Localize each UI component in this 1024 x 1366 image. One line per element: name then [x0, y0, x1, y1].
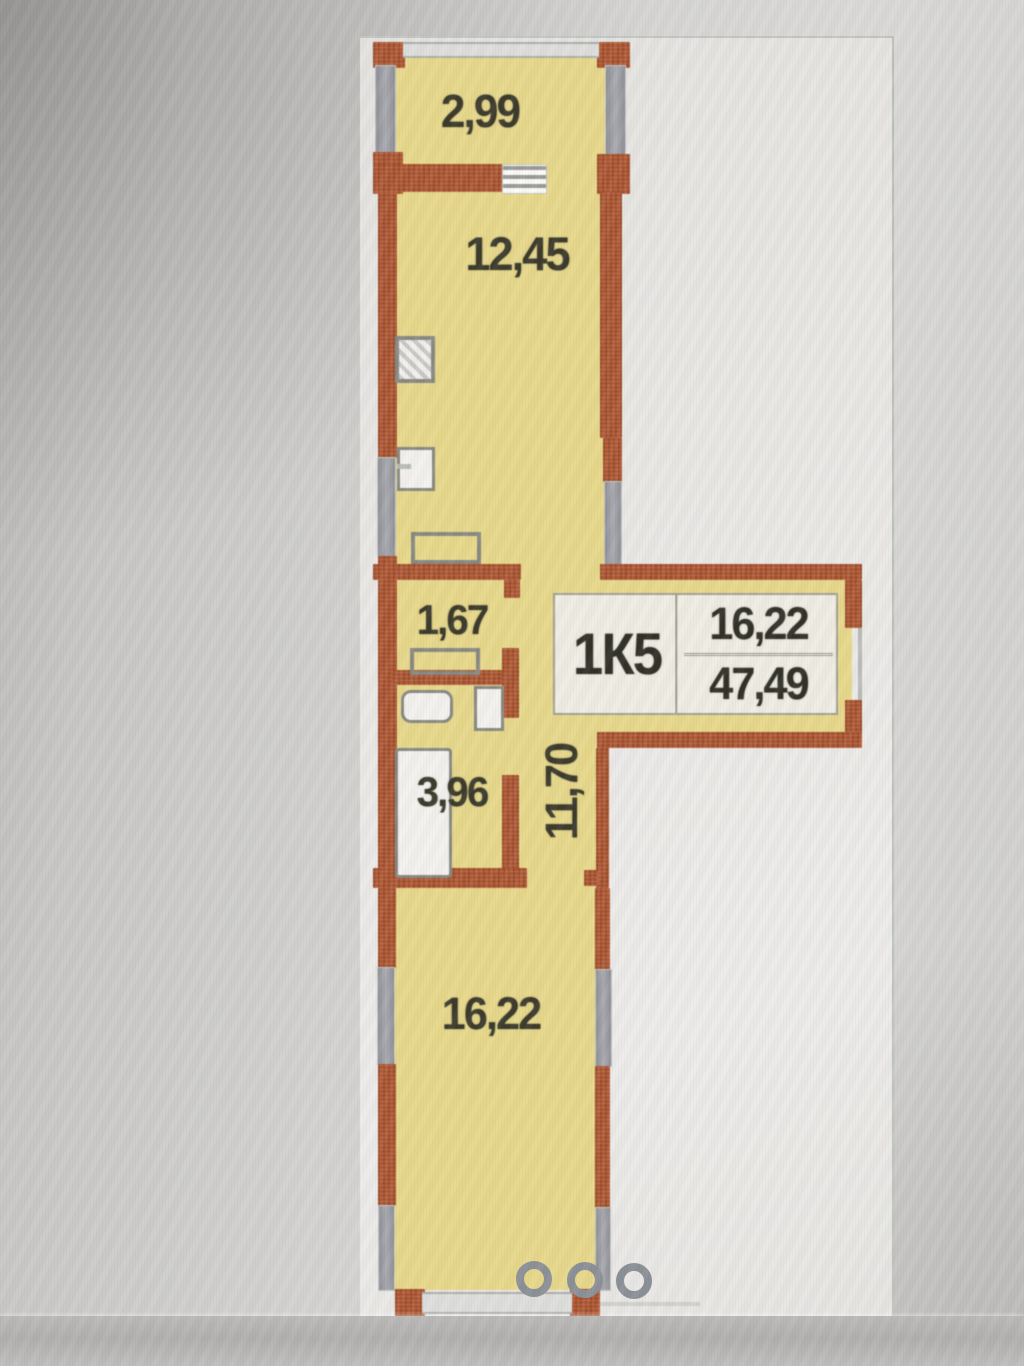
- wall: [373, 42, 405, 68]
- wall: [595, 1066, 610, 1208]
- wall: [378, 1064, 396, 1206]
- wall: [845, 580, 862, 628]
- unit-living-area: 16,22: [684, 595, 833, 656]
- stove-icon: [395, 336, 435, 383]
- window: [606, 66, 625, 156]
- window-ledge: [600, 1302, 700, 1306]
- unit-label-box: 1К5 16,22 47,49: [553, 593, 838, 715]
- floor-plan: 2,99 12,45 1,67 3,96 11,70 16,22 1К5 16,…: [0, 0, 1024, 1366]
- hallway-area-label: 11,70: [538, 715, 586, 869]
- radiator-icon: [502, 164, 547, 194]
- bathroom-area-label: 3,96: [394, 768, 509, 816]
- wall: [597, 154, 630, 194]
- pagination-dot[interactable]: [516, 1261, 552, 1297]
- wall: [395, 1289, 425, 1317]
- wall: [373, 564, 521, 580]
- table-icon: [411, 532, 481, 564]
- washbasin-icon: [474, 686, 504, 731]
- window: [422, 1292, 572, 1314]
- wall: [584, 870, 598, 886]
- window: [378, 968, 394, 1064]
- wall: [378, 888, 396, 968]
- window: [379, 1206, 394, 1290]
- wall: [502, 648, 519, 718]
- pagination-dot[interactable]: [567, 1262, 603, 1298]
- window: [596, 970, 611, 1066]
- balcony-area-label: 2,99: [413, 84, 547, 138]
- wall: [597, 732, 862, 748]
- unit-number: 1К5: [559, 595, 677, 713]
- faucet-icon: [397, 464, 411, 469]
- living-room-area-label: 16,22: [414, 988, 568, 1040]
- kitchen-area-label: 12,45: [440, 226, 594, 281]
- window: [403, 42, 599, 58]
- toilet-icon: [401, 690, 453, 723]
- window: [378, 458, 395, 556]
- wall: [600, 192, 622, 438]
- wall: [378, 192, 397, 458]
- wall: [373, 164, 503, 192]
- screen-bottom-band: [0, 1316, 1024, 1366]
- storage-area-label: 1,67: [394, 596, 509, 644]
- shelf-icon: [410, 648, 480, 675]
- kitchen-sink-icon: [397, 447, 435, 491]
- living-room: [392, 888, 606, 1290]
- wall: [595, 888, 610, 970]
- wall: [597, 42, 630, 68]
- wall: [603, 438, 622, 482]
- pagination-dot[interactable]: [616, 1263, 652, 1299]
- entrance-door: [858, 628, 862, 700]
- unit-areas: 16,22 47,49: [681, 595, 836, 713]
- wall: [596, 748, 609, 888]
- window: [605, 482, 621, 574]
- wall: [600, 564, 862, 580]
- unit-total-area: 47,49: [684, 656, 833, 714]
- window: [376, 66, 395, 154]
